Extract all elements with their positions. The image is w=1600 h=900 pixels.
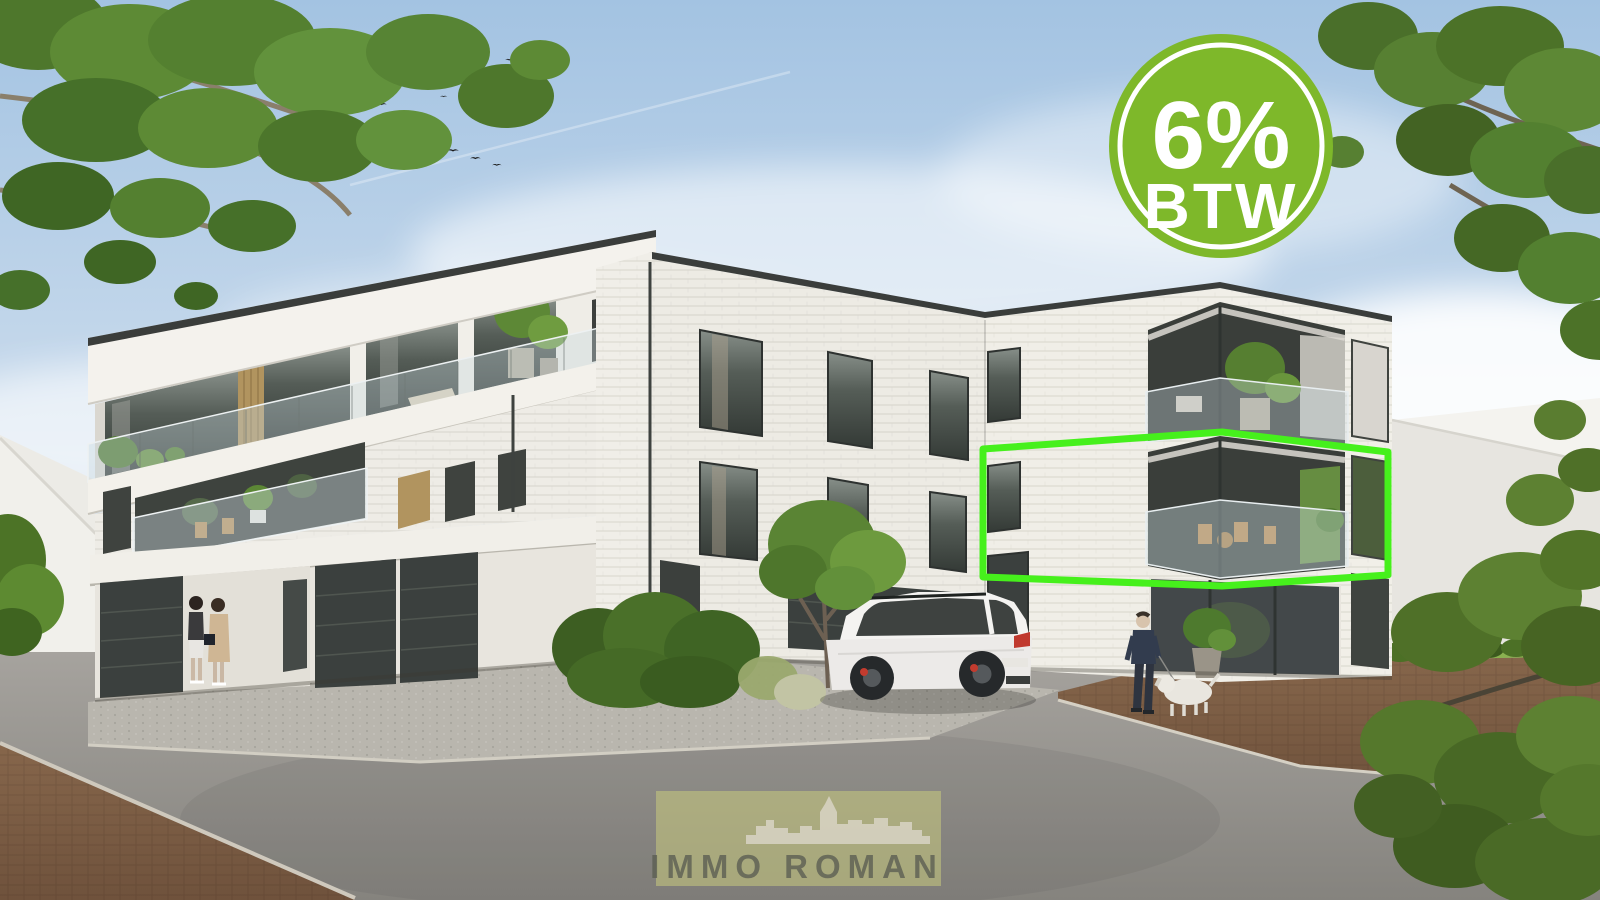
brand-watermark: IMMO ROMAN <box>650 791 944 886</box>
middle-floor-window-left <box>103 486 131 554</box>
top-loggia <box>1146 302 1348 448</box>
middle-floor-wood-panel <box>398 470 430 529</box>
middle-floor-window <box>445 461 475 522</box>
garage-door <box>400 552 478 683</box>
highlighted-apartment-loggia <box>1146 436 1348 580</box>
property-render-image: 6% BTW IMMO ROMAN <box>0 0 1600 900</box>
vat-badge-label: BTW <box>1144 170 1299 242</box>
garage-door <box>315 559 396 688</box>
ground-floor-glazing <box>1150 578 1340 676</box>
front-edge-windows <box>1352 340 1388 668</box>
building-right-block <box>985 282 1392 682</box>
garage-door <box>100 576 183 698</box>
loggia-balustrade-glass <box>1146 500 1348 578</box>
entrance-glass-door <box>283 579 307 672</box>
watermark-brand-text: IMMO ROMAN <box>650 848 944 885</box>
vat-badge: 6% BTW <box>1109 34 1333 258</box>
